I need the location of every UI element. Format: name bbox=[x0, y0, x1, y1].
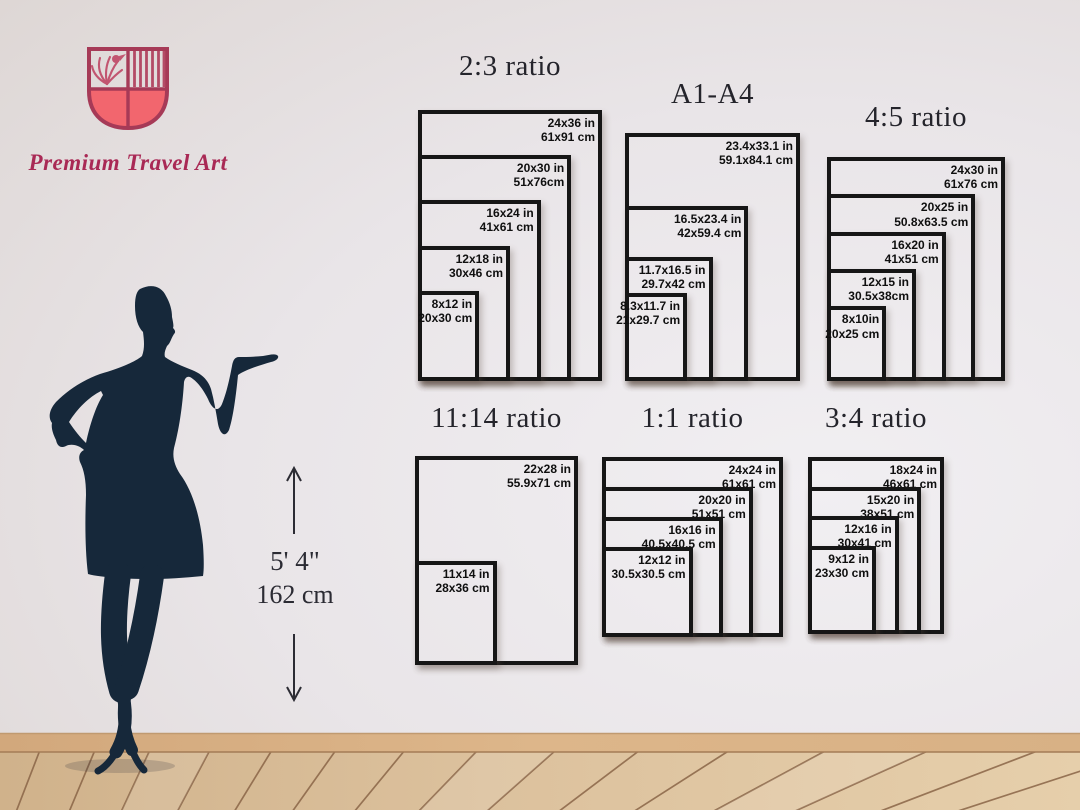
size-label: 11.7x16.5 in29.7x42 cm bbox=[639, 263, 706, 291]
height-arrow-up-icon bbox=[287, 468, 301, 534]
chart-title: 11:14 ratio bbox=[431, 402, 562, 435]
frame-stack: 24x24 in61x61 cm20x20 in51x51 cm16x16 in… bbox=[602, 457, 783, 637]
height-imperial: 5' 4" bbox=[240, 546, 350, 577]
size-label: 16.5x23.4 in42x59.4 cm bbox=[674, 212, 741, 240]
size-label: 20x30 in51x76cm bbox=[514, 161, 565, 189]
size-label: 8.3x11.7 in21x29.7 cm bbox=[616, 299, 680, 327]
size-label: 8x10in20x25 cm bbox=[825, 312, 879, 340]
size-frame: 9x12 in23x30 cm bbox=[808, 546, 876, 635]
size-guide-poster: Premium Travel Art bbox=[0, 0, 1080, 810]
size-chart-4-5: 4:5 ratio 24x30 in61x76 cm20x25 in50.8x6… bbox=[827, 157, 1005, 381]
size-label: 16x24 in41x61 cm bbox=[480, 206, 534, 234]
size-label: 22x28 in55.9x71 cm bbox=[507, 462, 571, 490]
size-chart-11-14: 11:14 ratio 22x28 in55.9x71 cm11x14 in28… bbox=[415, 456, 578, 665]
height-metric: 162 cm bbox=[240, 580, 350, 610]
size-frame: 8x10in20x25 cm bbox=[827, 306, 886, 381]
size-label: 23.4x33.1 in59.1x84.1 cm bbox=[719, 139, 793, 167]
size-chart-3-4: 3:4 ratio 18x24 in46x61 cm15x20 in38x51 … bbox=[808, 457, 944, 634]
size-label: 11x14 in28x36 cm bbox=[435, 567, 489, 595]
size-label: 12x12 in30.5x30.5 cm bbox=[611, 553, 685, 581]
size-label: 12x15 in30.5x38cm bbox=[848, 275, 909, 303]
size-chart-a1-a4: A1-A4 23.4x33.1 in59.1x84.1 cm16.5x23.4 … bbox=[625, 133, 800, 381]
frame-stack: 24x36 in61x91 cm20x30 in51x76cm16x24 in4… bbox=[418, 110, 602, 381]
chart-title: 1:1 ratio bbox=[642, 402, 744, 435]
frame-stack: 22x28 in55.9x71 cm11x14 in28x36 cm bbox=[415, 456, 578, 665]
size-label: 16x20 in41x51 cm bbox=[885, 238, 939, 266]
figure-shadow bbox=[65, 759, 175, 773]
size-frame: 8x12 in20x30 cm bbox=[418, 291, 479, 381]
size-frame: 8.3x11.7 in21x29.7 cm bbox=[625, 293, 687, 381]
chart-title: A1-A4 bbox=[671, 78, 754, 111]
chart-title: 3:4 ratio bbox=[825, 402, 927, 435]
frame-stack: 18x24 in46x61 cm15x20 in38x51 cm12x16 in… bbox=[808, 457, 944, 634]
frame-stack: 23.4x33.1 in59.1x84.1 cm16.5x23.4 in42x5… bbox=[625, 133, 800, 381]
chart-title: 2:3 ratio bbox=[459, 50, 561, 83]
size-frame: 12x12 in30.5x30.5 cm bbox=[602, 547, 693, 637]
size-label: 8x12 in20x30 cm bbox=[418, 297, 472, 325]
height-arrow-down-icon bbox=[287, 634, 301, 700]
size-chart-1-1: 1:1 ratio 24x24 in61x61 cm20x20 in51x51 … bbox=[602, 457, 783, 637]
size-label: 24x30 in61x76 cm bbox=[944, 163, 998, 191]
size-label: 9x12 in23x30 cm bbox=[815, 552, 869, 580]
height-marker: 5' 4" 162 cm bbox=[240, 450, 350, 710]
chart-title: 4:5 ratio bbox=[865, 101, 967, 134]
size-chart-2-3: 2:3 ratio 24x36 in61x91 cm20x30 in51x76c… bbox=[418, 110, 602, 381]
size-label: 12x18 in30x46 cm bbox=[449, 252, 503, 280]
frame-stack: 24x30 in61x76 cm20x25 in50.8x63.5 cm16x2… bbox=[827, 157, 1005, 381]
size-frame: 11x14 in28x36 cm bbox=[415, 561, 497, 666]
size-label: 20x25 in50.8x63.5 cm bbox=[894, 200, 968, 228]
size-label: 24x36 in61x91 cm bbox=[541, 116, 595, 144]
